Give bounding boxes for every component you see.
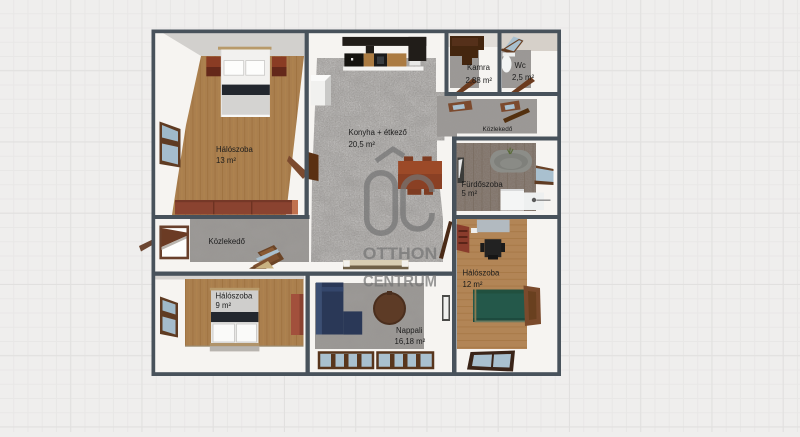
svg-text:Konyha + étkező: Konyha + étkező <box>349 128 408 137</box>
svg-text:2,5 m²: 2,5 m² <box>512 73 534 82</box>
svg-text:Közlekedő: Közlekedő <box>483 126 513 133</box>
svg-text:Hálószoba: Hálószoba <box>216 145 254 154</box>
svg-text:Közlekedő: Közlekedő <box>209 237 246 246</box>
svg-text:Hálószoba: Hálószoba <box>463 269 501 278</box>
svg-text:CENTRUM: CENTRUM <box>363 273 437 291</box>
svg-text:16,18 m²: 16,18 m² <box>395 337 426 346</box>
svg-text:2,88 m²: 2,88 m² <box>466 76 493 85</box>
svg-text:12 m²: 12 m² <box>463 280 483 289</box>
svg-text:Kamra: Kamra <box>467 63 491 72</box>
svg-text:OTTHON: OTTHON <box>363 245 438 263</box>
svg-text:Fürdőszoba: Fürdőszoba <box>462 180 504 189</box>
svg-text:9 m²: 9 m² <box>216 301 232 310</box>
svg-text:Hálószoba: Hálószoba <box>216 292 254 301</box>
svg-text:5 m²: 5 m² <box>462 189 478 198</box>
svg-text:13 m²: 13 m² <box>216 156 236 165</box>
svg-text:Nappali: Nappali <box>396 326 423 335</box>
svg-text:Wc: Wc <box>515 61 526 70</box>
svg-text:20,5 m²: 20,5 m² <box>349 140 376 149</box>
